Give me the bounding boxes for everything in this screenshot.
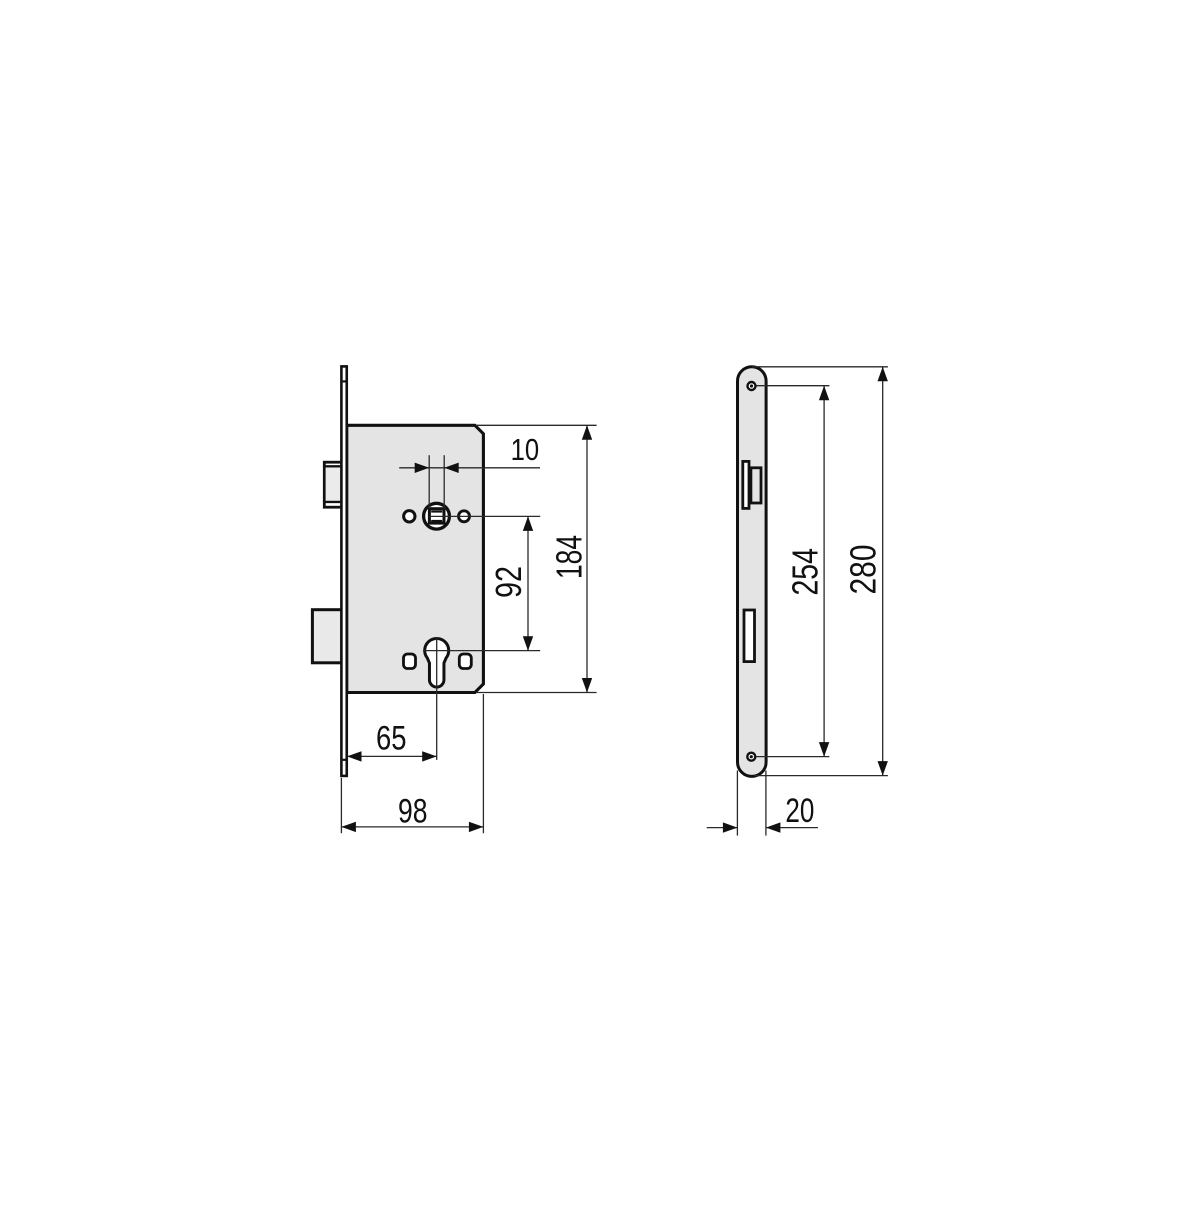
svg-text:184: 184: [549, 535, 590, 579]
svg-text:20: 20: [785, 792, 814, 830]
svg-text:98: 98: [398, 793, 428, 831]
svg-text:10: 10: [511, 432, 540, 467]
svg-text:65: 65: [376, 719, 407, 757]
svg-text:280: 280: [843, 545, 884, 595]
svg-text:254: 254: [785, 548, 826, 596]
svg-text:92: 92: [488, 566, 529, 598]
